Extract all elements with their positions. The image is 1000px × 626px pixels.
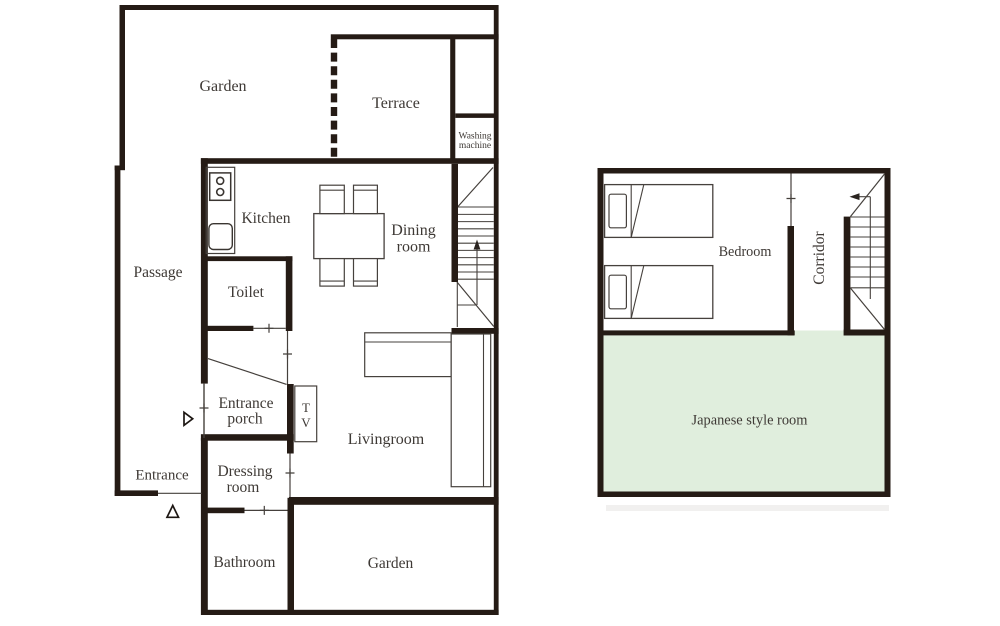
svg-text:Dressing: Dressing (217, 463, 272, 480)
svg-text:Entrance: Entrance (218, 395, 273, 412)
svg-text:T: T (302, 400, 310, 415)
svg-text:Livingroom: Livingroom (348, 431, 425, 448)
svg-text:Bathroom: Bathroom (214, 554, 276, 571)
svg-text:Terrace: Terrace (372, 95, 420, 112)
svg-text:V: V (301, 415, 311, 430)
svg-text:Dining: Dining (391, 222, 435, 239)
svg-text:Garden: Garden (368, 555, 414, 572)
svg-text:room: room (227, 479, 260, 496)
svg-text:porch: porch (227, 411, 263, 428)
svg-text:Toilet: Toilet (228, 284, 265, 301)
svg-text:Entrance: Entrance (135, 468, 189, 484)
svg-text:machine: machine (459, 141, 491, 151)
svg-text:Japanese style room: Japanese style room (692, 413, 808, 429)
svg-text:Corridor: Corridor (811, 230, 828, 284)
svg-text:Passage: Passage (133, 264, 182, 281)
svg-text:room: room (397, 239, 431, 256)
svg-text:Kitchen: Kitchen (241, 210, 290, 227)
svg-text:Bedroom: Bedroom (719, 244, 772, 260)
svg-text:Garden: Garden (199, 78, 246, 95)
